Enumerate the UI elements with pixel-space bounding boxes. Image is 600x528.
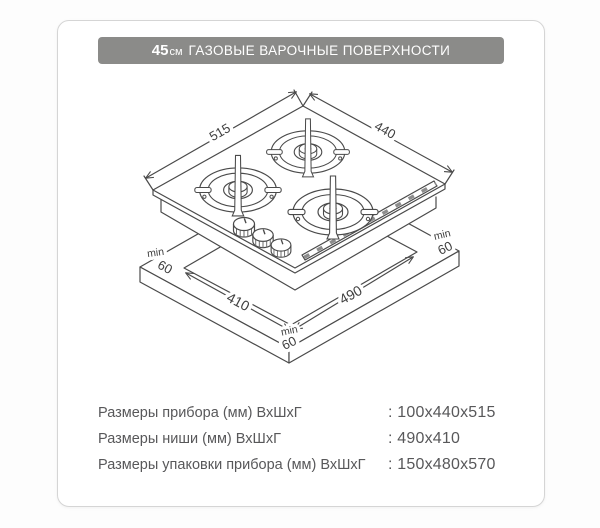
header-band: 45 см ГАЗОВЫЕ ВАРОЧНЫЕ ПОВЕРХНОСТИ [98,37,504,64]
spec-label: Размеры упаковки прибора (мм) ВхШхГ [98,457,388,473]
spec-row-niche: Размеры ниши (мм) ВхШхГ : 490x410 [98,430,528,448]
page: { "header": { "size": "45", "unit": "см"… [0,0,600,528]
spec-value: : 100x440x515 [388,404,496,422]
spec-label: Размеры прибора (мм) ВхШхГ [98,405,388,421]
spec-row-appliance: Размеры прибора (мм) ВхШхГ : 100x440x515 [98,404,528,422]
spec-value: : 150x480x570 [388,456,496,474]
spec-label: Размеры ниши (мм) ВхШхГ [98,431,388,447]
spec-row-packaging: Размеры упаковки прибора (мм) ВхШхГ : 15… [98,456,528,474]
spec-value: : 490x410 [388,430,460,448]
header-size-unit: см [169,46,182,58]
specs-table: Размеры прибора (мм) ВхШхГ : 100x440x515… [98,404,528,474]
header-size: 45 [152,42,169,59]
product-card: 45 см ГАЗОВЫЕ ВАРОЧНЫЕ ПОВЕРХНОСТИ Разме… [57,20,545,507]
header-title: ГАЗОВЫЕ ВАРОЧНЫЕ ПОВЕРХНОСТИ [189,43,451,58]
